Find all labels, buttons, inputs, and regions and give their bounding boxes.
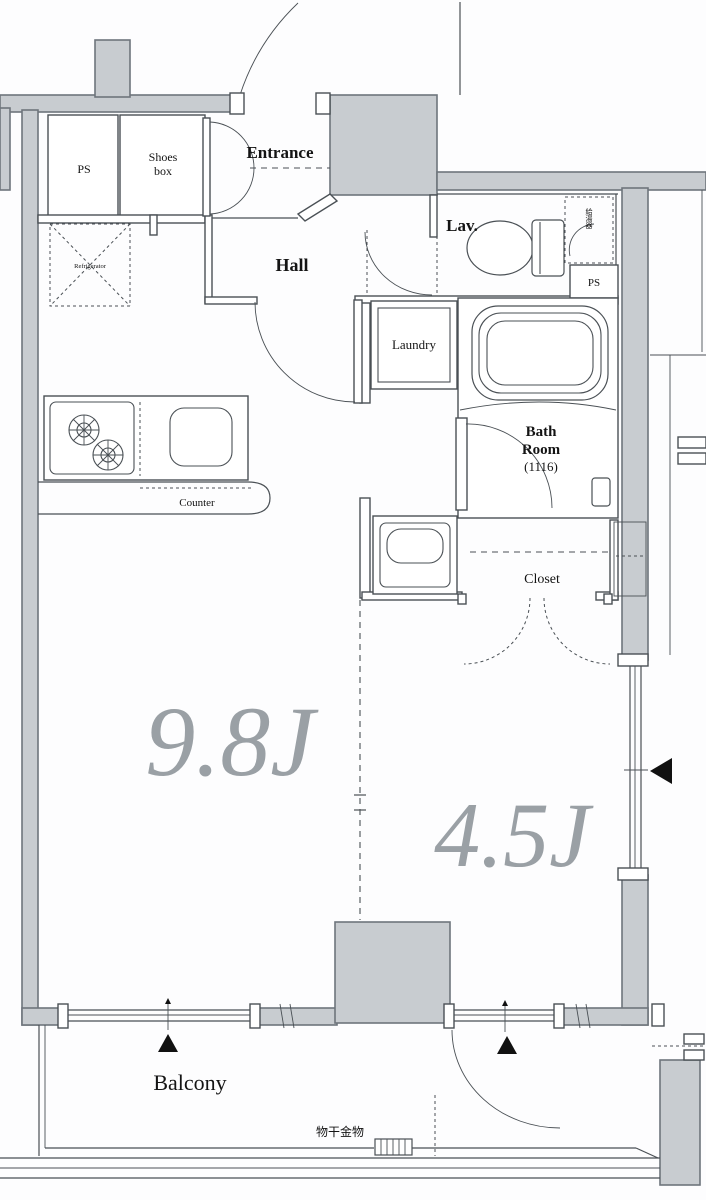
- bath-room: [456, 298, 618, 518]
- ps-top-left-label: PS: [77, 162, 90, 176]
- wall-entrance-column: [330, 95, 437, 195]
- neighbor-handle-1: [678, 437, 706, 448]
- neighbor-bracket-2: [684, 1050, 704, 1060]
- shoes-box-label-line2: box: [154, 164, 172, 178]
- hall-living-door: [255, 300, 362, 403]
- window-main-room[interactable]: [65, 998, 255, 1030]
- hall-label: Hall: [275, 255, 308, 275]
- drying-fixture-icon: [375, 1139, 412, 1155]
- neighbor-bracket-3: [652, 1004, 664, 1026]
- bath-drain-icon: [592, 478, 610, 506]
- washbasin-outer: [373, 516, 457, 594]
- wall-hall-left: [205, 215, 212, 303]
- closet-door-jamb-right: [604, 594, 612, 604]
- second-room-size-label: 4.5J: [434, 784, 594, 886]
- entry-door-frame-right: [316, 93, 330, 114]
- wall-neighbor-column: [660, 1060, 700, 1185]
- water-heater-label: 給湯器: [585, 207, 593, 230]
- bathtub-icon: [472, 306, 608, 400]
- drying-fixture-label: 物干金物: [316, 1124, 364, 1139]
- window-frame-a: [58, 1004, 68, 1028]
- wall-right-lower: [622, 875, 648, 1025]
- wall-bottom-column: [335, 922, 450, 1023]
- window-right-wall[interactable]: [624, 662, 648, 872]
- window-frame-c: [444, 1004, 454, 1028]
- window-frame-e: [618, 654, 648, 666]
- bath-room-label-line1: Bath: [526, 424, 558, 440]
- neighbor-bracket-1: [684, 1034, 704, 1044]
- direction-marker-second: [497, 1036, 517, 1054]
- toilet-tank-icon: [532, 220, 564, 276]
- bath-door-panel: [456, 418, 467, 510]
- balcony-floor-corner: [636, 1148, 658, 1158]
- wall-bottom-right: [558, 1008, 648, 1025]
- lav-label: Lav.: [446, 216, 478, 235]
- window-frame-f: [618, 868, 648, 880]
- closet-door-arc-right: [544, 598, 610, 664]
- wall-below-ps: [38, 215, 205, 223]
- neighbor-handle-2: [678, 453, 706, 464]
- closet-label: Closet: [524, 572, 560, 587]
- wall-top-right-band: [437, 172, 706, 190]
- bath-room-size-label: (1116): [524, 459, 558, 474]
- wall-hall-south-left: [205, 297, 257, 304]
- wall-left: [22, 110, 38, 1025]
- wall-washroom-left-lower: [360, 498, 370, 598]
- wall-entrance-chamfer: [298, 194, 337, 221]
- window-frame-d: [554, 1004, 564, 1028]
- water-heater-space: [565, 197, 613, 263]
- window-frame-b: [250, 1004, 260, 1028]
- window-second-room[interactable]: [452, 1000, 558, 1032]
- refrigerator-label: Refrigerator: [74, 263, 107, 270]
- floor-plan-drawing: Entrance PS Shoes box Hall Lav. 給湯器 PS R…: [0, 0, 706, 1200]
- wall-stub-entrance: [150, 215, 157, 235]
- neighbor-structures: [650, 190, 706, 1060]
- kitchen: [38, 396, 270, 514]
- closet-door-arc-left: [464, 598, 530, 664]
- entrance-area: [203, 118, 330, 216]
- counter-label: Counter: [179, 497, 215, 509]
- hall-door-swing-arc: [255, 302, 355, 402]
- balcony-area: [0, 1025, 660, 1178]
- shoes-box-door-arc-bottom: [210, 168, 254, 214]
- kitchen-unit-outline: [44, 396, 248, 480]
- wall-bottom-mid-left: [255, 1008, 337, 1025]
- floor-plan-page: Entrance PS Shoes box Hall Lav. 給湯器 PS R…: [0, 0, 706, 1200]
- wall-top-left-sliver: [0, 108, 10, 190]
- wall-right-upper: [622, 188, 648, 660]
- wall-lav-left: [430, 195, 437, 237]
- wall-stub-above: [95, 40, 130, 97]
- counter-outline: [38, 482, 270, 514]
- entry-door-frame-left: [230, 93, 244, 114]
- burner-2-spokes: [93, 440, 123, 470]
- main-room-size-label: 9.8J: [145, 686, 319, 797]
- laundry-label: Laundry: [392, 337, 437, 352]
- ps-right-label: PS: [588, 277, 600, 289]
- hall-door-panel: [354, 300, 362, 403]
- closet-area: [458, 520, 646, 664]
- shoes-box-door-jamb: [203, 118, 210, 216]
- closet-door-jamb-left: [458, 594, 466, 604]
- entry-door-swing-arc: [240, 3, 298, 95]
- direction-marker-right: [650, 758, 672, 784]
- entrance-label: Entrance: [246, 143, 314, 162]
- balcony-label: Balcony: [153, 1070, 226, 1095]
- lav-room: [365, 197, 618, 298]
- room-divider: [354, 600, 366, 920]
- lav-door-swing-arc: [365, 232, 432, 295]
- direction-marker-main: [158, 1034, 178, 1052]
- shoes-box-label-line1: Shoes: [149, 150, 178, 164]
- bath-room-label-line2: Room: [522, 442, 561, 458]
- burner-1-spokes: [69, 415, 99, 445]
